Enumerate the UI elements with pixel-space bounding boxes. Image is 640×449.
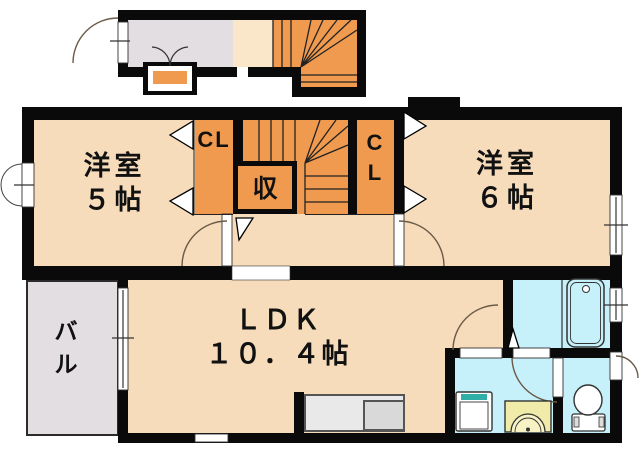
storage-door [236, 218, 253, 240]
toilet-handle-right [599, 417, 604, 427]
washroom-door-opening [460, 348, 502, 358]
room-5-label: 洋室 ５帖 [34, 150, 195, 218]
storage-label: 収 [238, 174, 292, 205]
stairs-1f [273, 20, 357, 82]
stairs-1f-winder [301, 20, 357, 67]
stairs-1f-lower-treads [301, 75, 357, 82]
butterfly-door-right [170, 47, 188, 66]
bath-door-opening [513, 348, 550, 358]
vanity-drain [526, 428, 530, 432]
room5-door-arc [182, 221, 227, 266]
toilet-door-opening [553, 358, 563, 397]
entry-closet-doors [152, 47, 188, 66]
stairs-2f-winder [305, 120, 348, 163]
washer-tray-accent [461, 394, 487, 400]
toilet-handle-left [574, 417, 579, 427]
balcony-label: バ ル [40, 315, 92, 382]
entry-door-opening [118, 22, 128, 63]
closet-left-label: CL [193, 125, 235, 155]
closet-left-door-top [170, 121, 193, 149]
room-6-label: 洋室 ６帖 [404, 148, 610, 216]
stairs-1f-treads [273, 20, 291, 67]
toilet-door-arc [512, 358, 557, 402]
washroom-door-arc [453, 305, 498, 350]
room6-door-arc [399, 221, 444, 266]
closet-right-door-top [404, 112, 426, 139]
bathtub-drain [583, 286, 590, 293]
bath-door-fold [508, 329, 519, 348]
washing-machine [460, 402, 488, 429]
casement-arc-top [1, 164, 22, 185]
stairs-2f-lower-treads [305, 176, 348, 202]
toilet [574, 385, 602, 415]
ldk-label: ＬＤＫ １０．４帖 [128, 304, 428, 372]
openings [22, 22, 622, 442]
stairs-2f-treads [259, 120, 295, 161]
entry-hall-gap [237, 67, 248, 77]
closet-right-label: C L [357, 128, 394, 187]
plan-linework [0, 0, 640, 449]
butterfly-door-left [152, 47, 170, 66]
ldk-bottom-vent [195, 434, 228, 442]
floor-plan: 洋室 ５帖 洋室 ６帖 ＬＤＫ １０．４帖 CL C L 収 バ ル [0, 0, 640, 449]
landing-ldk-passage [232, 266, 290, 280]
casement-arc-bottom [1, 185, 22, 206]
